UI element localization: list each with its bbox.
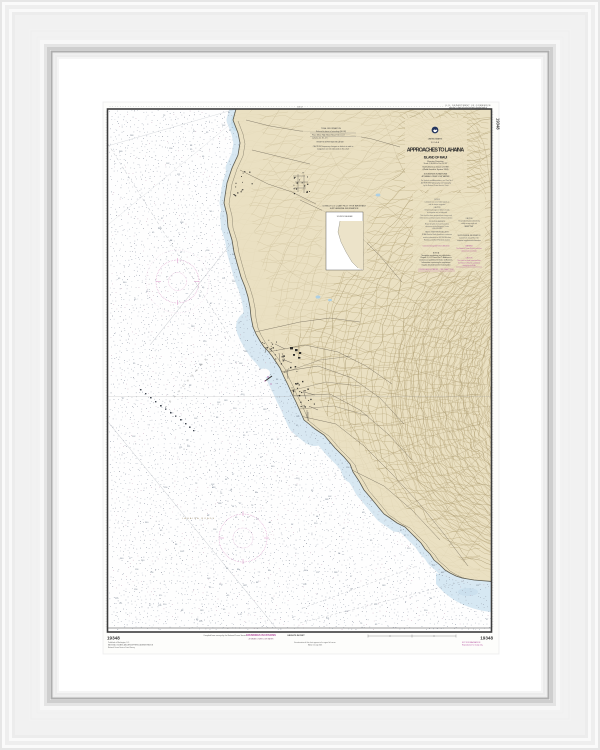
svg-text:APPROACHES TO LAHAINA: APPROACHES TO LAHAINA	[407, 147, 465, 153]
svg-text:solely on any single aid: solely on any single aid	[461, 223, 477, 225]
svg-text:19348: 19348	[495, 118, 500, 130]
svg-text:SOUNDINGS IN FATHOMS: SOUNDINGS IN FATHOMS	[246, 634, 276, 637]
svg-text:Place Mean High Water: Place Mean High Water Mean Tide Level	[312, 134, 345, 137]
svg-text:U.S. DEPARTMENT OF COMMERCE: U.S. DEPARTMENT OF COMMERCE	[446, 104, 492, 107]
svg-text:NOAA: NOAA	[431, 141, 440, 144]
svg-text:Lahaina 2.1 ft: Lahaina 2.1 ft 1.2 ft	[312, 137, 328, 140]
svg-text:AT MEAN LOWER LOW WATER: AT MEAN LOWER LOW WATER	[249, 637, 274, 640]
svg-text:156°42': 156°42'	[297, 107, 304, 109]
svg-text:Compiled from surveys by the N: Compiled from surveys by the National Oc…	[203, 634, 246, 637]
svg-text:navigation are not indicated o: navigation are not indicated on this cha…	[317, 147, 350, 150]
svg-text:(World Geodetic System 1984): (World Geodetic System 1984)	[423, 168, 449, 171]
svg-text:HEIGHTS IN FEET ABOVE DATUM: HEIGHTS IN FEET ABOVE DATUM	[317, 141, 345, 144]
svg-text:LAHAINA ROADS: LAHAINA ROADS	[182, 517, 215, 520]
svg-text:may be obtained from the Comma: may be obtained from the Commander	[422, 263, 451, 266]
svg-text:SOURCE DIAGRAM: SOURCE DIAGRAM	[337, 215, 353, 218]
svg-text:UNITED STATES: UNITED STATES	[428, 137, 443, 140]
svg-text:AT MEAN LOWER LOW WATER: AT MEAN LOWER LOW WATER	[422, 175, 450, 178]
svg-text:ISLAND OF MAUI: ISLAND OF MAUI	[424, 156, 448, 160]
svg-text:Referred to datum of soundings: Referred to datum of soundings (MLLW)	[316, 130, 346, 133]
svg-text:NOTE B: NOTE B	[434, 199, 440, 201]
svg-text:Scale 1:30,000 at Lat 20°52': Scale 1:30,000 at Lat 20°52'	[424, 162, 448, 165]
svg-text:HEIGHTS IN FEET: HEIGHTS IN FEET	[287, 635, 305, 637]
svg-text:POLLUTION REPORTS: POLLUTION REPORTS	[429, 221, 445, 223]
svg-text:19348: 19348	[480, 636, 493, 641]
svg-text:1-800-424-8802: 1-800-424-8802	[432, 228, 443, 230]
svg-text:TIDAL INFORMATION: TIDAL INFORMATION	[321, 127, 342, 130]
svg-text:Reproduction for study only: Reproduction for study only	[462, 643, 483, 646]
svg-text:SUPPLEMENTAL INFORMATION: SUPPLEMENTAL INFORMATION	[330, 207, 359, 210]
svg-text:506 PT 47: 506 PT 47	[465, 225, 474, 228]
svg-text:19348: 19348	[107, 636, 120, 641]
